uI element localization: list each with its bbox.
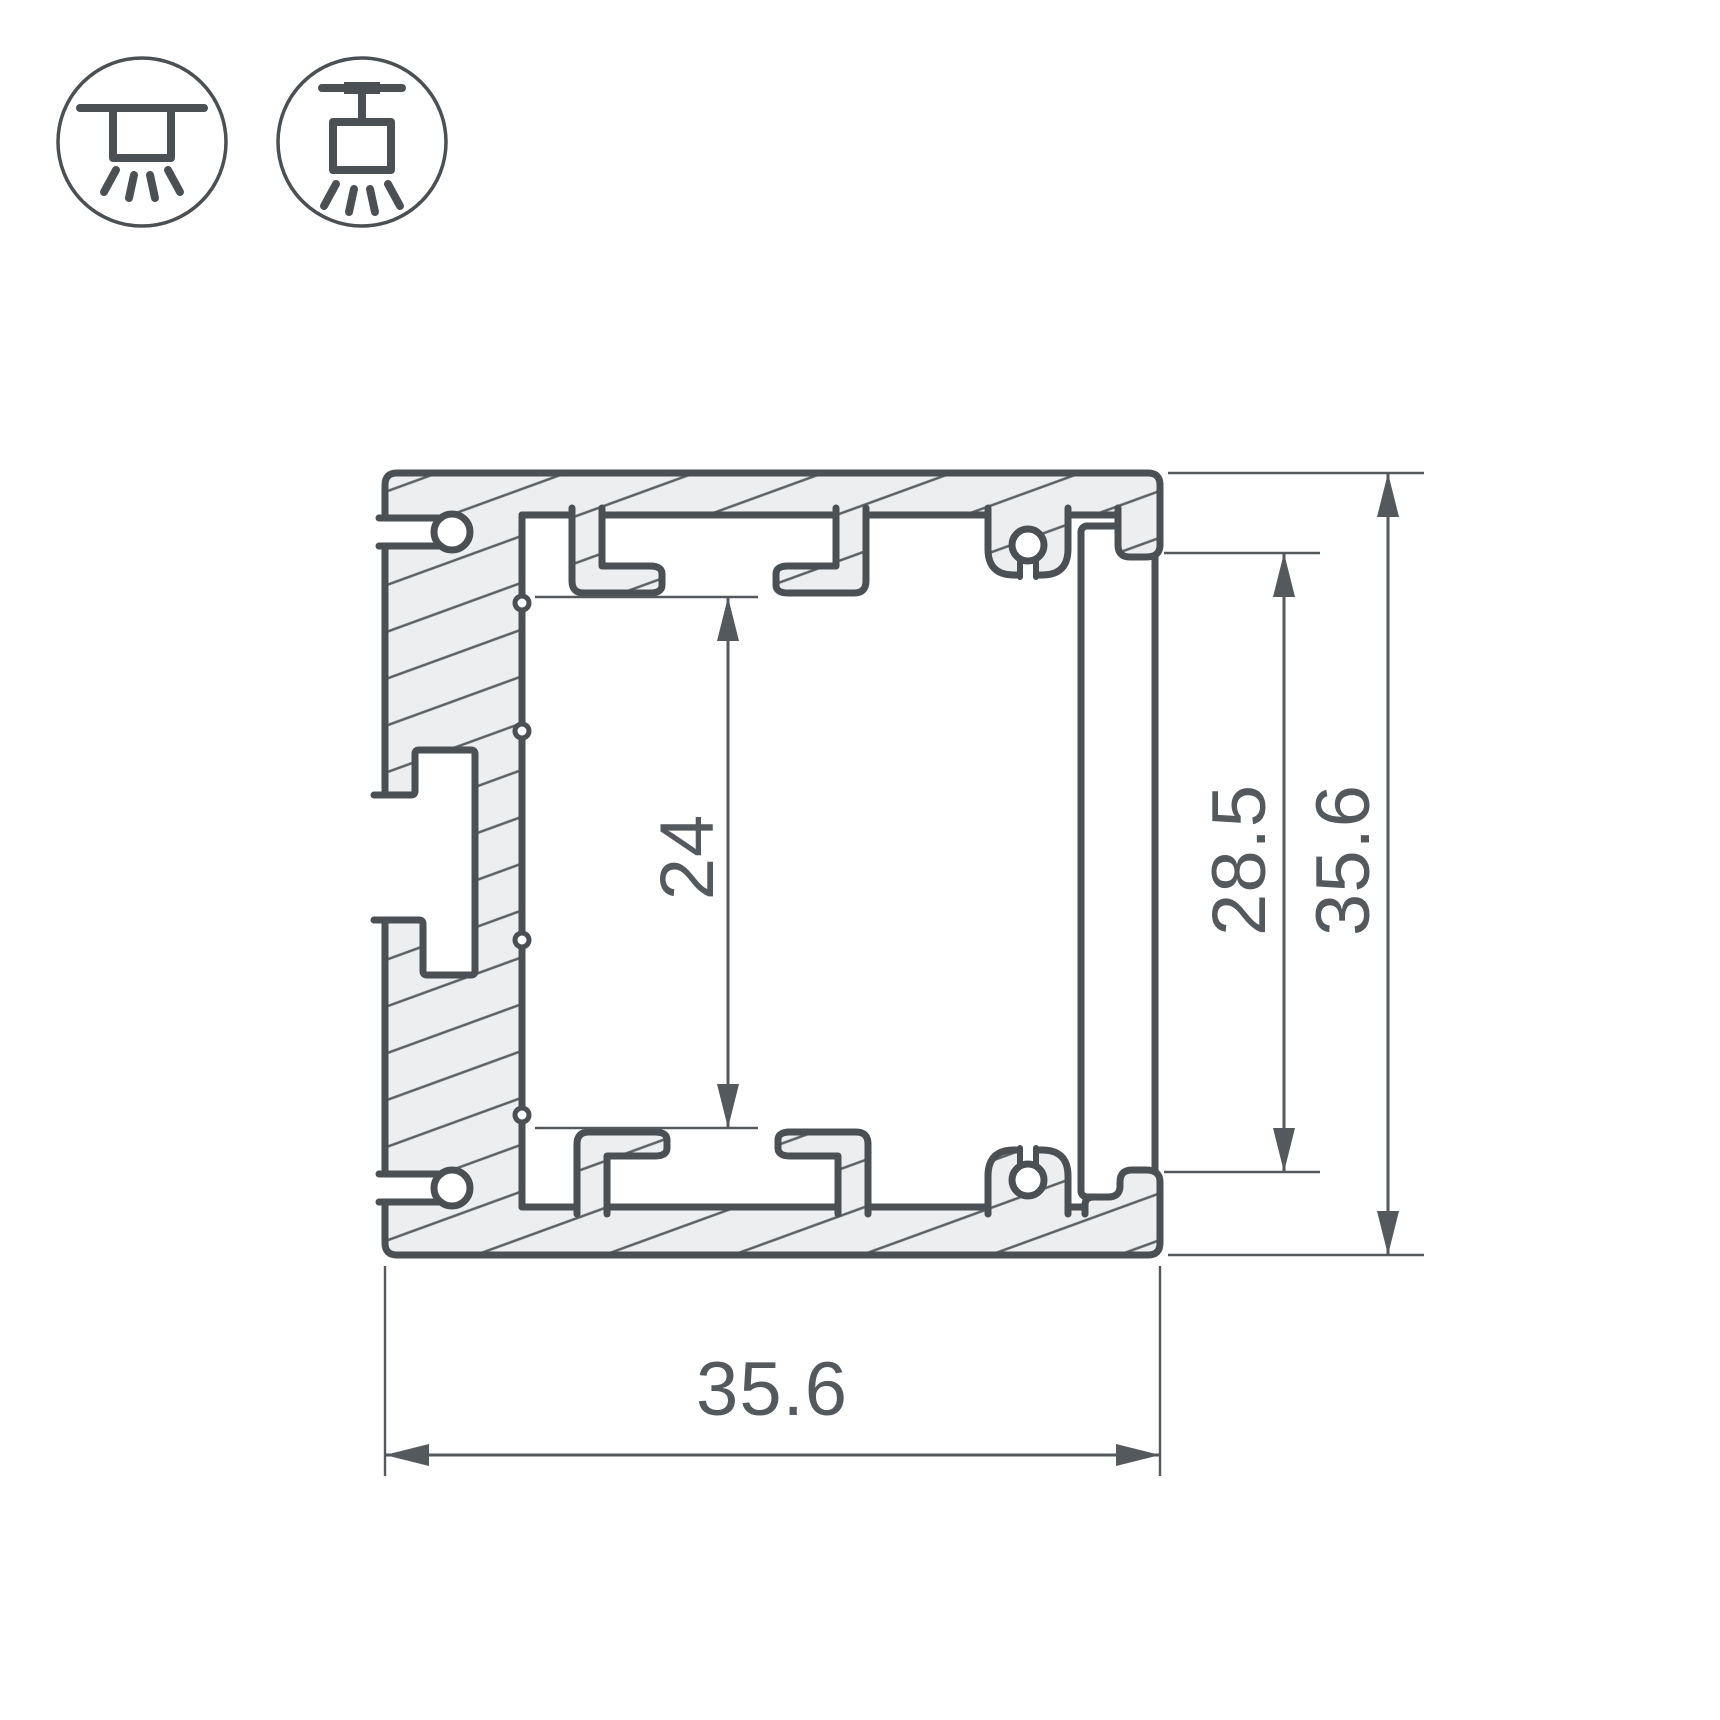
led-shelf-tab-top-left bbox=[572, 508, 662, 593]
dimension-overall-width: 35.6 bbox=[385, 1266, 1160, 1476]
dim-label-inner-height: 24 bbox=[645, 814, 730, 901]
dim-label-overall-height: 35.6 bbox=[1301, 784, 1386, 936]
retaining-lip-top-right bbox=[1118, 508, 1160, 557]
dim-label-screen-length: 28.5 bbox=[1197, 784, 1282, 936]
cover-plate bbox=[1081, 526, 1155, 1197]
page: 24 28.5 35.6 35.6 bbox=[0, 0, 1720, 1720]
led-shelf-tab-bottom-right bbox=[778, 1132, 868, 1214]
dimension-inner-height: 24 bbox=[535, 597, 758, 1128]
led-shelf-tab-bottom-left bbox=[577, 1132, 667, 1214]
screw-boss-bottom-right bbox=[988, 1146, 1068, 1214]
profile-bottom-wall bbox=[385, 1207, 1160, 1255]
suspended-mount-light-icon bbox=[278, 58, 446, 226]
led-shelf-tab-top-right bbox=[776, 508, 866, 593]
screw-port-top-left bbox=[372, 514, 470, 550]
dimension-screen-length: 28.5 bbox=[1164, 553, 1320, 1172]
dim-label-overall-width: 35.6 bbox=[696, 1347, 848, 1432]
drawing-canvas: 24 28.5 35.6 35.6 bbox=[0, 0, 1720, 1720]
screw-port-bottom-left bbox=[372, 1170, 470, 1206]
screw-boss-top-right bbox=[988, 508, 1068, 579]
surface-mount-light-icon bbox=[58, 58, 226, 226]
profile-drawing bbox=[372, 473, 1160, 1255]
mount-icons bbox=[58, 58, 446, 226]
